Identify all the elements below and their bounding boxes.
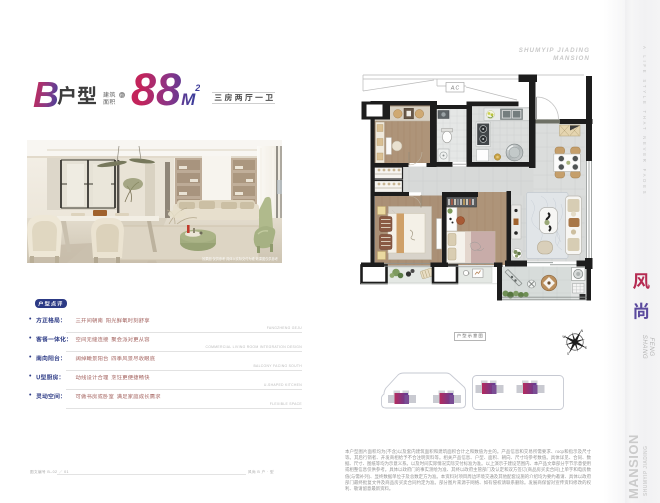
svg-text:A.C: A.C: [450, 85, 460, 91]
svg-text:E: E: [585, 346, 588, 350]
svg-text:效果图 仅供参考 具体以实际交付为准 效果图仅供参考: 效果图 仅供参考 具体以实际交付为准 效果图仅供参考: [202, 256, 278, 261]
svg-text:N: N: [581, 329, 584, 333]
